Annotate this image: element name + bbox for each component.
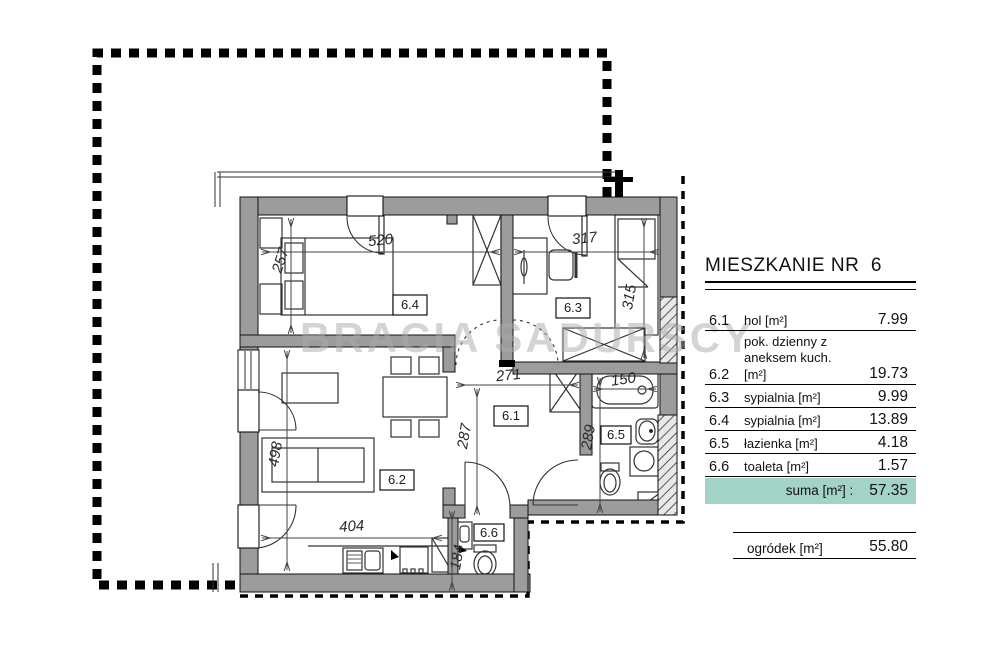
dim-289: 289: [578, 423, 599, 452]
door-toilet-66: [465, 462, 510, 507]
room-label-61-text: 6.1: [502, 408, 520, 423]
dim-315: 315: [619, 283, 640, 311]
title-underline-thick: [705, 281, 916, 283]
wall-bottom: [240, 574, 530, 592]
row-area: 19.73: [856, 365, 916, 383]
room-area-table: 6.1 hol [m²] 7.99 6.2 pok. dzienny z ane…: [705, 308, 916, 477]
room-label-65-text: 6.5: [607, 427, 625, 442]
chair-icon: [549, 250, 576, 280]
row-name: hol [m²]: [744, 313, 856, 329]
room-label-66: 6.6: [474, 524, 504, 541]
room-label-64-text: 6.4: [401, 297, 419, 312]
row-number: 6.5: [709, 436, 744, 452]
room-label-66-text: 6.6: [480, 525, 498, 540]
room-label-62: 6.2: [380, 470, 414, 490]
table-row-sypialnia-64: 6.4 sypialnia [m²] 13.89: [705, 408, 916, 431]
row-area: 4.18: [856, 434, 916, 452]
area-table-panel: MIESZKANIE NR 6 6.1 hol [m²] 7.99 6.2 po…: [705, 255, 916, 559]
row-name: sypialnia [m²]: [744, 390, 856, 406]
dim-498: 498: [265, 440, 286, 468]
room-label-63-text: 6.3: [564, 300, 582, 315]
dim-184: 184: [447, 543, 468, 571]
room-label-65: 6.5: [601, 426, 631, 444]
row-name: sypialnia [m²]: [744, 413, 856, 429]
table-row-pok-dzienny: 6.2 pok. dzienny z aneksem kuch. [m²] 19…: [705, 331, 916, 385]
door-bathroom-65: [533, 460, 578, 505]
wall-63-65: [513, 362, 677, 374]
row-area: 1.57: [856, 457, 916, 475]
wall-66-top-left: [443, 505, 465, 518]
dim-287: 287: [454, 422, 475, 451]
room-label-62-text: 6.2: [388, 472, 406, 487]
hatched-wall-lower: [658, 415, 677, 515]
dim-150: 150: [610, 369, 638, 389]
wall-top: [240, 197, 677, 215]
window-left: [238, 350, 259, 390]
toilet-icon-65: [600, 463, 620, 495]
table-row-lazienka: 6.5 łazienka [m²] 4.18: [705, 431, 916, 454]
apartment-title: MIESZKANIE NR 6: [705, 255, 916, 281]
garden-area-row: ogródek [m²] 55.80: [733, 532, 916, 559]
coffee-table-icon: [282, 373, 338, 403]
wall-66-top-right: [510, 505, 528, 518]
wall-66-right: [514, 518, 528, 592]
row-number: 6.4: [709, 413, 744, 429]
wardrobe-icon-64: [473, 215, 501, 285]
table-row-hol: 6.1 hol [m²] 7.99: [705, 308, 916, 331]
row-area: 13.89: [856, 411, 916, 429]
dim-257: 257: [268, 245, 292, 276]
row-number: 6.6: [709, 459, 744, 475]
dining-table-icon: [383, 357, 447, 437]
garden-label: ogródek [m²]: [747, 541, 823, 556]
watermark-text: BRACIA SADURSCY: [300, 314, 754, 361]
row-name: łazienka [m²]: [744, 436, 856, 452]
row-number: 6.2: [709, 367, 744, 383]
row-area: 9.99: [856, 388, 916, 406]
desk-icon: [512, 238, 547, 294]
dim-317: 317: [571, 229, 598, 249]
row-name: toaleta [m²]: [744, 459, 856, 475]
row-number: 6.3: [709, 390, 744, 406]
suma-value: 57.35: [869, 482, 908, 500]
bathroom-sink-icon: [636, 419, 658, 444]
wall-nub: [447, 215, 457, 224]
dim-271: 271: [494, 366, 522, 386]
suma-label: suma [m²] :: [786, 483, 854, 498]
dim-404: 404: [339, 517, 365, 536]
kitchen-counter-icon: [308, 546, 452, 573]
table-row-sypialnia-63: 6.3 sypialnia [m²] 9.99: [705, 385, 916, 408]
dim-520: 520: [367, 231, 394, 251]
row-area: 7.99: [856, 311, 916, 329]
suma-row: suma [m²] : 57.35: [705, 478, 916, 504]
wall-bath-bottom: [528, 500, 677, 515]
row-number: 6.1: [709, 313, 744, 329]
room-label-61: 6.1: [494, 406, 528, 426]
washing-machine-icon: [630, 447, 658, 476]
title-underline-thin: [705, 289, 916, 290]
toilet-icon-66: [474, 545, 496, 577]
table-row-toaleta: 6.6 toaleta [m²] 1.57: [705, 454, 916, 477]
row-name: pok. dzienny z aneksem kuch. [m²]: [744, 334, 856, 383]
floorplan-page: 520 317 257 315 271 287 150 289 498 404 …: [0, 0, 1001, 657]
room-label-64: 6.4: [393, 295, 427, 315]
garden-value: 55.80: [869, 538, 908, 556]
stove-icon: [400, 547, 428, 573]
